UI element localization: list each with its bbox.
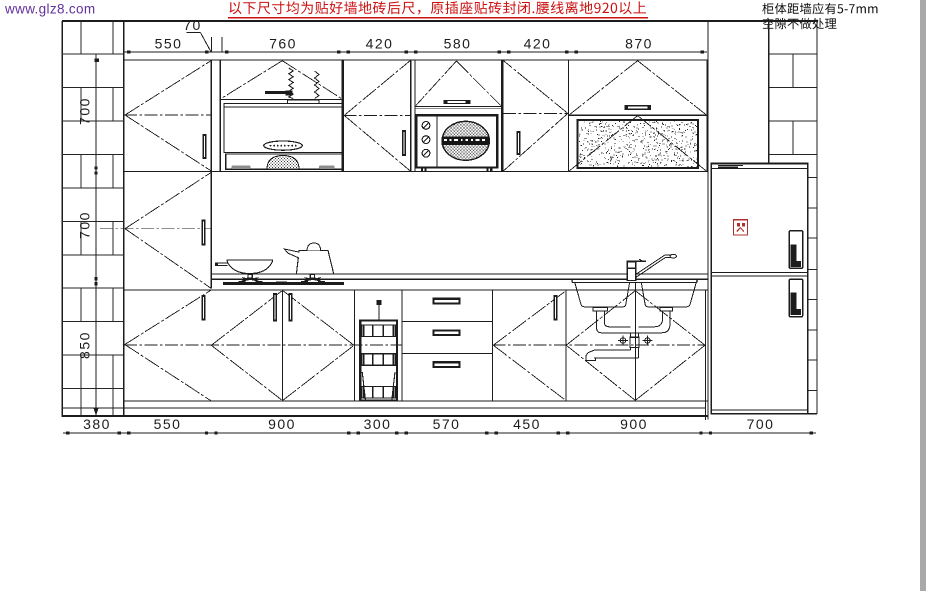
svg-text:550: 550 bbox=[154, 416, 182, 432]
svg-text:870: 870 bbox=[625, 36, 653, 52]
svg-text:700: 700 bbox=[77, 211, 93, 239]
svg-text:900: 900 bbox=[268, 416, 296, 432]
svg-text:420: 420 bbox=[524, 36, 552, 52]
svg-text:700: 700 bbox=[77, 97, 93, 125]
svg-text:70: 70 bbox=[183, 17, 202, 33]
svg-text:700: 700 bbox=[747, 416, 775, 432]
svg-text:420: 420 bbox=[366, 36, 394, 52]
svg-text:380: 380 bbox=[83, 416, 111, 432]
svg-text:300: 300 bbox=[364, 416, 392, 432]
svg-text:760: 760 bbox=[269, 36, 297, 52]
svg-text:580: 580 bbox=[444, 36, 472, 52]
svg-text:550: 550 bbox=[155, 36, 183, 52]
svg-text:570: 570 bbox=[433, 416, 461, 432]
svg-text:www.glz8.com: www.glz8.com bbox=[4, 2, 95, 17]
svg-text:450: 450 bbox=[513, 416, 541, 432]
svg-text:900: 900 bbox=[620, 416, 648, 432]
svg-text:850: 850 bbox=[77, 331, 93, 359]
